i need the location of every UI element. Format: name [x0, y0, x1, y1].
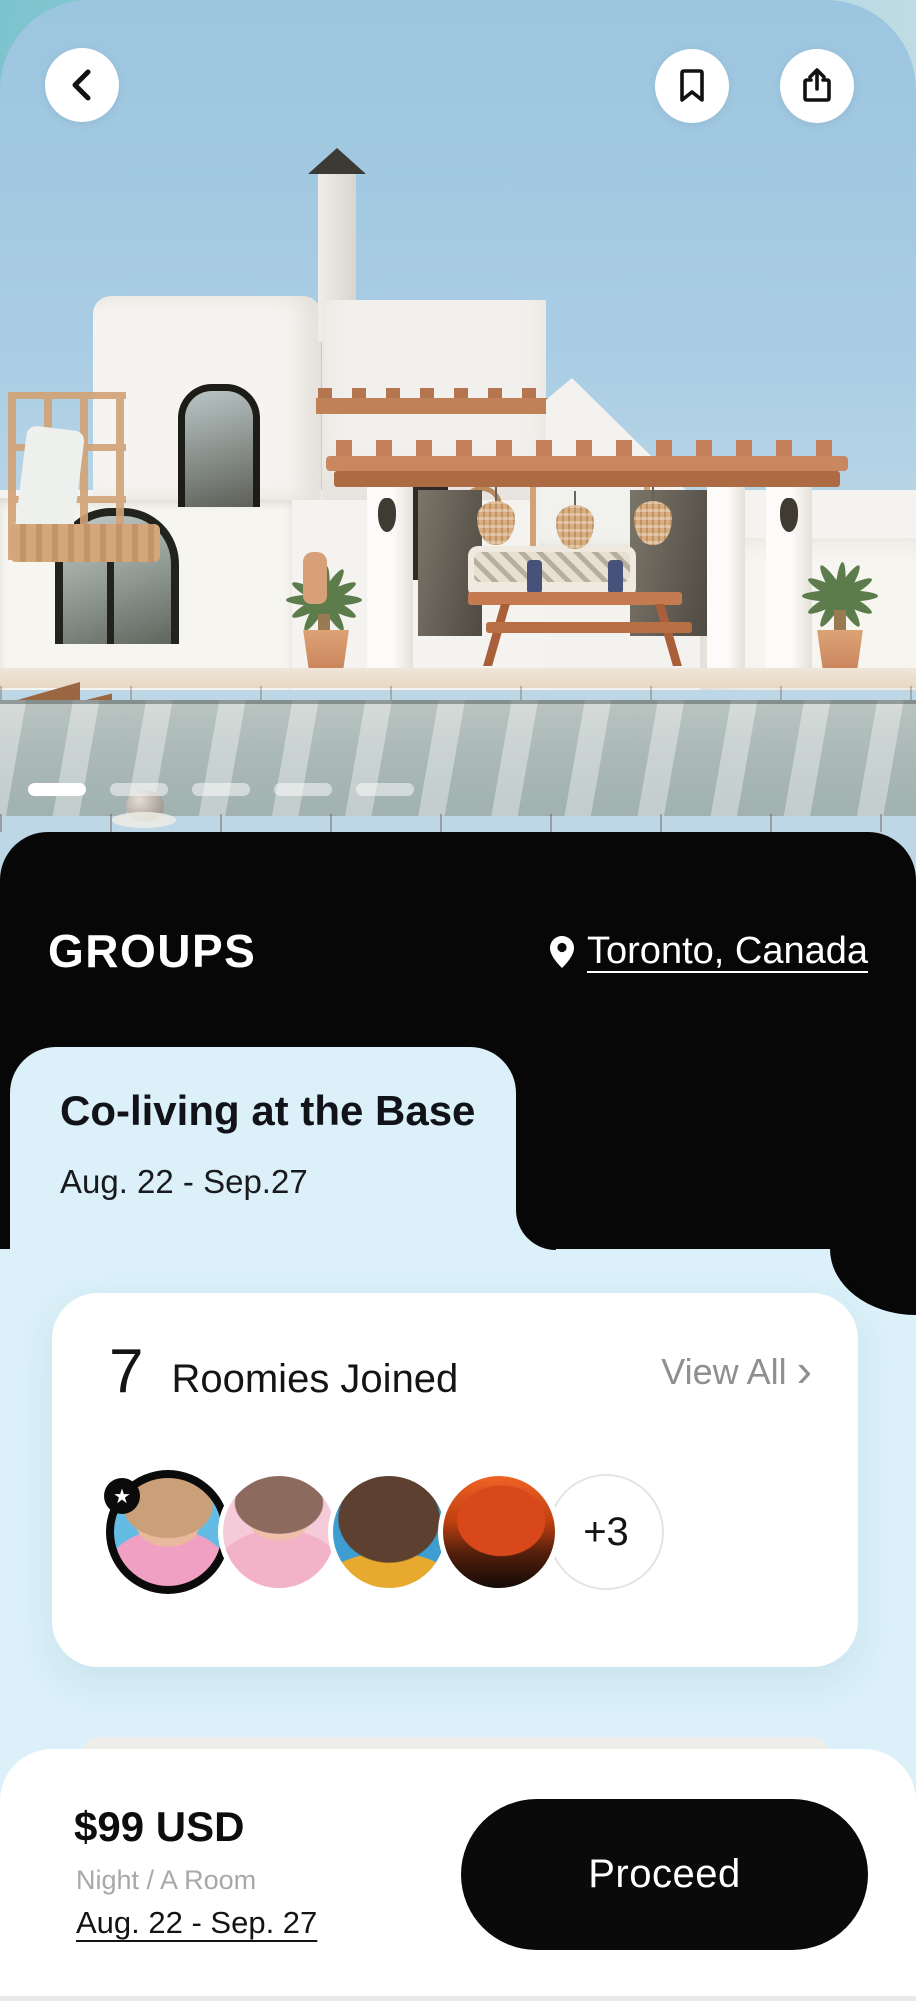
arched-window-left-tower [178, 384, 260, 507]
avatar-3[interactable] [328, 1471, 450, 1593]
avatar-4[interactable] [438, 1471, 560, 1593]
bookmark-icon [677, 68, 707, 104]
roomies-header-row: 7 Roomies Joined View All › [109, 1341, 812, 1403]
pergola-beam-bottom [334, 471, 840, 487]
avatar-1-featured[interactable]: ★ [106, 1470, 230, 1594]
palm-plant-right [788, 552, 892, 636]
view-all-label: View All [661, 1351, 786, 1393]
chimney-cap [308, 148, 366, 174]
column-lantern-right [780, 498, 798, 532]
back-button[interactable] [45, 48, 119, 122]
chevron-right-icon: › [797, 1347, 812, 1393]
location-link[interactable]: Toronto, Canada [549, 930, 868, 973]
carousel-dash [110, 783, 168, 796]
property-photo-carousel[interactable] [0, 0, 916, 880]
couch-cushions [474, 552, 630, 582]
booking-dates-link[interactable]: Aug. 22 - Sep. 27 [76, 1905, 317, 1941]
wicker-pendant-lamp-1 [467, 487, 525, 545]
pool-fountain-splash [112, 812, 176, 828]
cornice-beam [316, 398, 556, 414]
share-icon [800, 67, 834, 105]
panel-corner-fillet [516, 1210, 556, 1250]
table-bottle-right [608, 560, 623, 594]
listing-title: Co-living at the Base [60, 1087, 475, 1135]
star-glyph: ★ [113, 1484, 131, 1509]
terracotta-vase [303, 552, 327, 604]
listing-date-range: Aug. 22 - Sep.27 [60, 1163, 308, 1201]
price-unit-label: Night / A Room [76, 1865, 256, 1896]
roomies-card: 7 Roomies Joined View All › ★ +3 [52, 1293, 858, 1667]
booking-bottom-sheet: $99 USD Night / A Room Aug. 22 - Sep. 27… [0, 1749, 916, 2001]
table-bottle-left [527, 560, 542, 594]
terrace-floor [0, 668, 916, 688]
pergola-rafters [336, 440, 844, 456]
location-label: Toronto, Canada [587, 930, 868, 973]
view-all-button[interactable]: View All › [661, 1351, 812, 1393]
rooftop-lounger [10, 524, 160, 562]
proceed-button[interactable]: Proceed [461, 1799, 868, 1950]
carousel-dash-active [28, 783, 86, 796]
listing-card: Co-living at the Base Aug. 22 - Sep.27 [10, 1047, 516, 1259]
price-label: $99 USD [74, 1803, 244, 1851]
wicker-pendant-lamp-2 [546, 491, 604, 549]
carousel-page-indicator [28, 783, 414, 796]
app-screen: GROUPS Toronto, Canada Co-living at the … [0, 0, 916, 2001]
pool-waterline [0, 700, 916, 704]
home-indicator-strip [0, 1996, 916, 2001]
column-lantern-left [378, 498, 396, 532]
pergola-column-middle [707, 487, 745, 672]
avatar-overflow-count[interactable]: +3 [548, 1474, 664, 1590]
roomies-count: 7 [109, 1341, 143, 1403]
bookmark-button[interactable] [655, 49, 729, 123]
wicker-pendant-lamp-3 [624, 487, 682, 545]
map-pin-icon [549, 935, 575, 969]
pool-coping-far [0, 686, 916, 701]
page-title: GROUPS [48, 924, 256, 978]
star-badge-icon: ★ [104, 1478, 140, 1514]
carousel-dash [356, 783, 414, 796]
roomies-label: Roomies Joined [171, 1357, 458, 1402]
door-stile [107, 556, 114, 644]
chevron-left-icon [67, 68, 97, 102]
avatar-2[interactable] [218, 1471, 340, 1593]
roomies-avatars: ★ +3 [106, 1470, 664, 1594]
share-button[interactable] [780, 49, 854, 123]
carousel-dash [274, 783, 332, 796]
picnic-bench [486, 622, 692, 633]
carousel-dash [192, 783, 250, 796]
proceed-label: Proceed [588, 1852, 740, 1897]
pergola-beam-top [326, 456, 848, 471]
overflow-count-label: +3 [583, 1510, 629, 1555]
